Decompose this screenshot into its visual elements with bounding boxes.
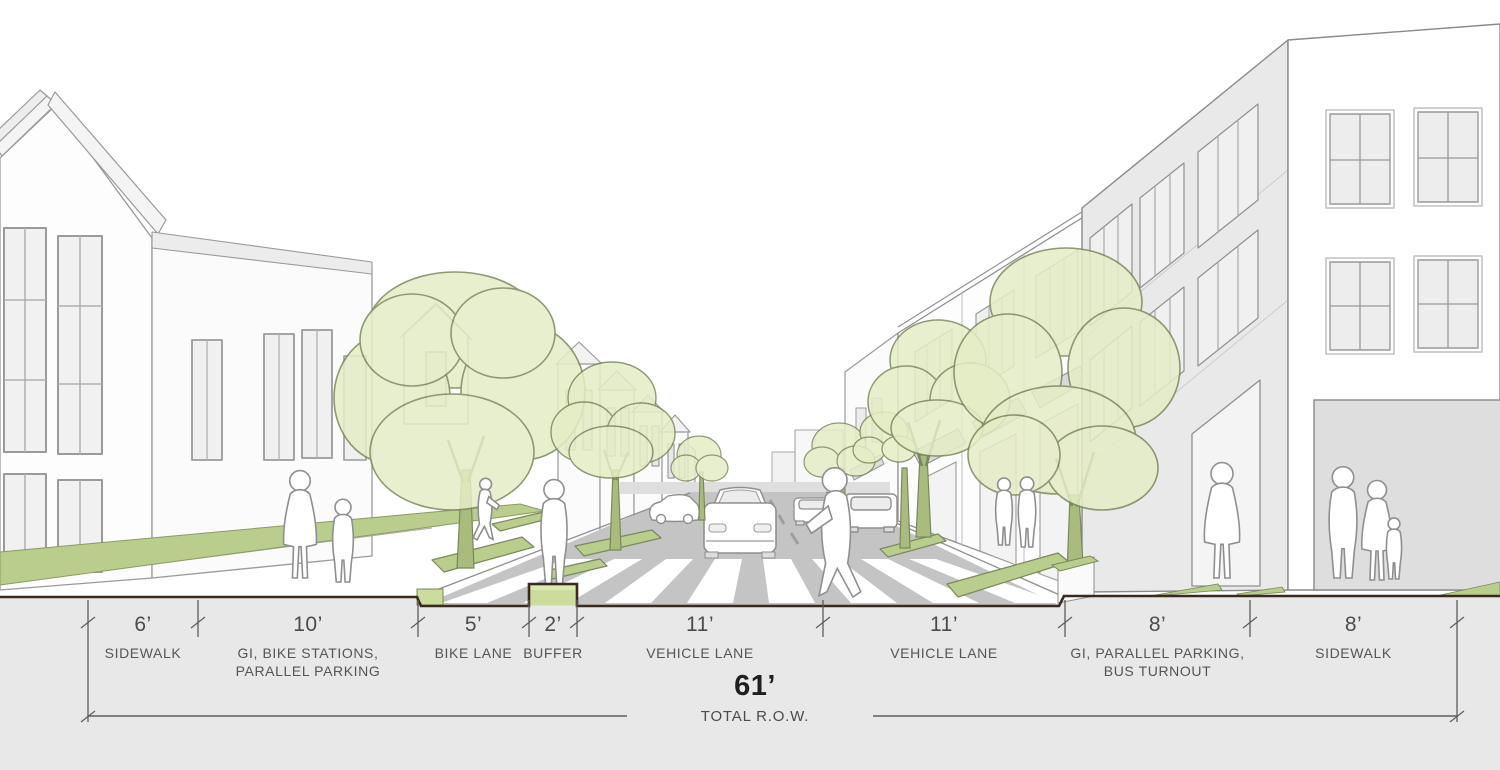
dimension-lines [0,0,1500,770]
street-section-diagram: 61’ TOTAL R.O.W. 6’SIDEWALK10’GI, BIKE S… [0,0,1500,770]
